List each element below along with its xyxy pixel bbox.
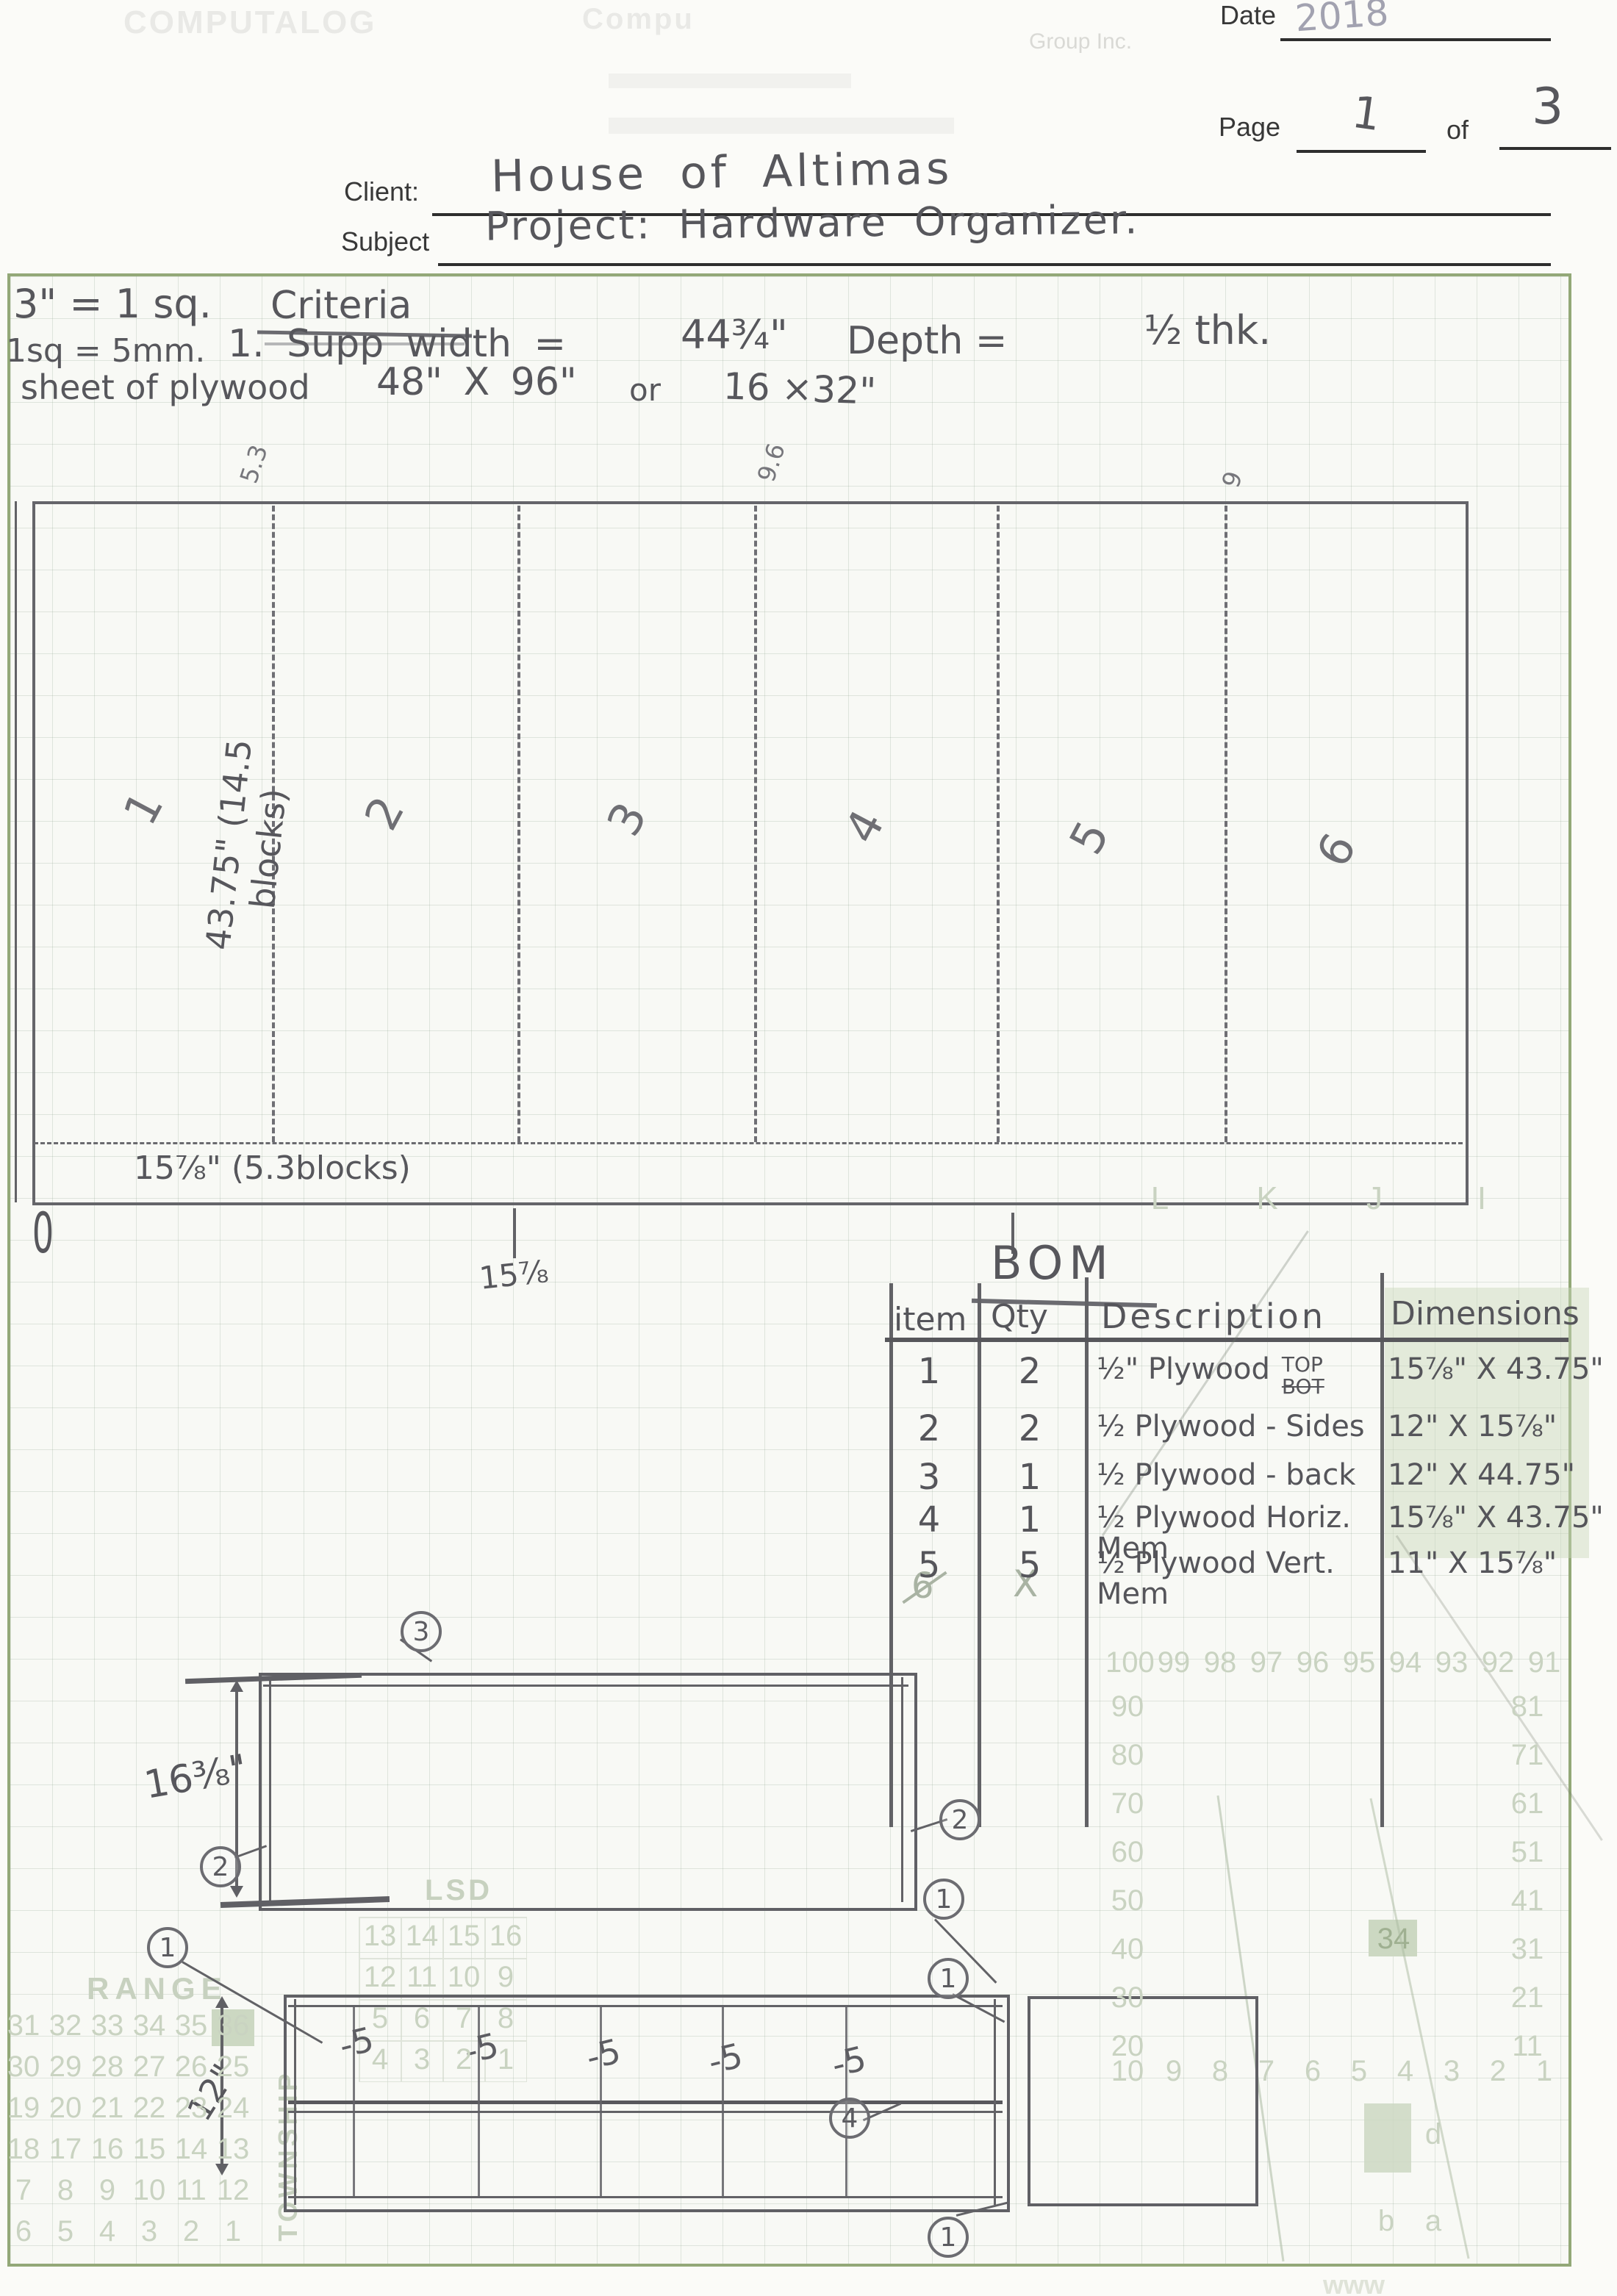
lsd-grid-number: 11 xyxy=(400,1961,444,1994)
range-grid-number: 16 xyxy=(85,2133,129,2166)
range-grid-number: 30 xyxy=(1,2051,46,2084)
lsd-grid-number: 10 xyxy=(442,1961,486,1994)
range-grid-number: 11 xyxy=(169,2174,213,2207)
section-grid-number: 60 xyxy=(1105,1836,1150,1869)
cut-layout-tick xyxy=(513,1208,516,1258)
front-view-shelf-inner xyxy=(288,2111,1003,2113)
bom-col-dimensions: Dimensions xyxy=(1391,1295,1580,1332)
section-grid-number: 5 xyxy=(1337,2055,1381,2088)
lsd-grid-number: 7 xyxy=(442,2002,486,2035)
section-grid-number: 4 xyxy=(1383,2055,1427,2088)
section-grid-number: 31 xyxy=(1505,1933,1549,1966)
section-grid-number: 3 xyxy=(1430,2055,1474,2088)
range-grid-number: 19 xyxy=(1,2092,46,2125)
cut-layout-divider-line xyxy=(754,506,757,1142)
cut-layout-strip-label: 15⅞" (5.3blocks) xyxy=(134,1149,411,1187)
criteria-title: Criteria xyxy=(270,284,412,328)
sheet-dims: 48" X 96" xyxy=(376,360,577,404)
column-letter: K xyxy=(1245,1180,1289,1217)
cut-layout-divider-line xyxy=(1225,506,1227,1142)
date-value: 2018 xyxy=(1294,0,1390,40)
section-grid-number: 1 xyxy=(1522,2055,1566,2088)
lsd-grid-number: 5 xyxy=(358,2002,402,2035)
column-letter: J xyxy=(1352,1180,1396,1217)
lsd-grid-number: 16 xyxy=(484,1920,528,1953)
front-view-right-inner xyxy=(994,1999,996,2205)
bom-cell-item: 2 xyxy=(898,1408,960,1449)
section-grid-number: 93 xyxy=(1430,1646,1474,1679)
range-grid-number: 18 xyxy=(1,2133,46,2166)
range-grid-number: 6 xyxy=(1,2215,46,2248)
page-label: Page xyxy=(1219,112,1280,143)
lsd-grid-number: 15 xyxy=(442,1920,486,1953)
scale-note-1: 3" = 1 sq. xyxy=(13,281,212,327)
section-grid-number: 97 xyxy=(1244,1646,1288,1679)
scale-note-2: 1sq = 5mm. xyxy=(6,332,205,370)
callout-circle-4: 4 xyxy=(829,2098,870,2139)
lsd-grid-number: 4 xyxy=(358,2043,402,2076)
range-grid-number: 24 xyxy=(211,2092,255,2125)
section-grid-number: 90 xyxy=(1105,1690,1150,1723)
bom-cell-dimensions: 15⅞" X 43.75" xyxy=(1388,1352,1608,1386)
bom-cell-qty: 1 xyxy=(997,1499,1063,1540)
side-view-rectangle xyxy=(1028,1996,1258,2206)
section-grid-number: 2 xyxy=(1476,2055,1520,2088)
section-grid-number: 100 xyxy=(1105,1646,1150,1679)
front-view-left-inner xyxy=(294,1999,296,2205)
bom-cell-dimensions: 15⅞" X 43.75" xyxy=(1388,1501,1608,1535)
section-grid-number: 96 xyxy=(1291,1646,1335,1679)
range-grid-number: 1 xyxy=(211,2215,255,2248)
range-grid-number: 14 xyxy=(169,2133,213,2166)
section-grid-number: 99 xyxy=(1152,1646,1196,1679)
section-grid-number: 81 xyxy=(1505,1690,1549,1723)
cut-layout-bottom-strip-line xyxy=(34,1142,1463,1144)
column-letter: I xyxy=(1460,1180,1504,1217)
total-pages: 3 xyxy=(1532,78,1563,136)
range-grid-number: 31 xyxy=(1,2009,46,2042)
lsd-grid-number: 14 xyxy=(400,1920,444,1953)
range-grid-number: 28 xyxy=(85,2051,129,2084)
bom-title: BOM xyxy=(991,1236,1114,1290)
front-view-divider xyxy=(722,2006,724,2196)
callout-circle-1: 1 xyxy=(928,2217,969,2258)
range-grid-number: 15 xyxy=(127,2133,171,2166)
range-grid-number: 33 xyxy=(85,2009,129,2042)
bom-cell-description: ½ Plywood Vert. Mem xyxy=(1097,1548,1376,1610)
cut-layout-tick-label: 15⅞ xyxy=(478,1253,551,1296)
top-view-rectangle xyxy=(259,1673,917,1911)
range-grid-number: 2 xyxy=(169,2215,213,2248)
lsd-grid-number: 12 xyxy=(358,1961,402,1994)
lsd-grid-number: 1 xyxy=(484,2043,528,2076)
lsd-grid-number: 6 xyxy=(400,2002,444,2035)
section-grid-number: 61 xyxy=(1505,1787,1549,1820)
range-grid-number: 10 xyxy=(127,2174,171,2207)
range-grid-number: 26 xyxy=(169,2051,213,2084)
range-grid-number: 13 xyxy=(211,2133,255,2166)
letterhead-smudge xyxy=(609,118,954,134)
client-label: Client: xyxy=(344,176,419,207)
cut-layout-divider-line xyxy=(997,506,1000,1142)
range-grid-number: 35 xyxy=(169,2009,213,2042)
bom-cell-item: 4 xyxy=(898,1499,960,1540)
letterhead-group: Group Inc. xyxy=(1029,29,1132,54)
date-label: Date xyxy=(1220,0,1276,31)
cut-layout-origin-label: 0 xyxy=(32,1201,54,1266)
letterhead-brand-fragment: Compu xyxy=(582,3,695,36)
sheet-label: sheet of plywood xyxy=(21,367,310,407)
lsd-grid-number: 9 xyxy=(484,1961,528,1994)
top-view-inner-line xyxy=(263,1685,908,1687)
highlight-34-value: 34 xyxy=(1372,1923,1416,1956)
range-grid-number: 12 xyxy=(211,2174,255,2207)
range-grid-number: 9 xyxy=(85,2174,129,2207)
section-grid-number: 91 xyxy=(1522,1646,1566,1679)
range-grid-number: 7 xyxy=(1,2174,46,2207)
callout-circle-1: 1 xyxy=(147,1927,188,1968)
range-grid-number: 17 xyxy=(43,2133,87,2166)
bom-cell-description: ½ Plywood - Sides xyxy=(1097,1411,1376,1442)
alt-dims: 16 ×32" xyxy=(723,365,877,412)
bom-cell-dimensions: 11" X 15⅞" xyxy=(1388,1546,1608,1580)
cut-layout-divider-line xyxy=(517,506,520,1142)
section-grid-number: 40 xyxy=(1105,1933,1150,1966)
range-grid-number: 32 xyxy=(43,2009,87,2042)
bom-cell-description: ½ Plywood - back xyxy=(1097,1460,1376,1490)
bom-col-item: item xyxy=(894,1301,967,1338)
section-grid-number: 80 xyxy=(1105,1739,1150,1772)
top-view-inner-line xyxy=(269,1677,271,1902)
of-label: of xyxy=(1446,115,1469,146)
corner-letter-d: d xyxy=(1411,2118,1455,2151)
bom-cell-dimensions: 12" X 44.75" xyxy=(1388,1458,1608,1492)
date-underline xyxy=(1280,38,1551,41)
section-grid-number: 21 xyxy=(1505,1981,1549,2015)
corner-shaded-cell xyxy=(1364,2103,1411,2173)
subject-value: Project: Hardware Organizer. xyxy=(485,196,1140,249)
section-grid-number: 10 xyxy=(1105,2055,1150,2088)
lsd-grid-number: 13 xyxy=(358,1920,402,1953)
section-grid-number: 70 xyxy=(1105,1787,1150,1820)
section-grid-number: 50 xyxy=(1105,1884,1150,1917)
bom-col-description: Description xyxy=(1101,1296,1326,1336)
range-grid-number: 27 xyxy=(127,2051,171,2084)
range-grid-number: 3 xyxy=(127,2215,171,2248)
range-grid-number: 34 xyxy=(127,2009,171,2042)
bom-cell-qty: 5 xyxy=(997,1545,1063,1586)
bom-cell-item: 5 xyxy=(898,1545,960,1586)
bom-cell-item: 1 xyxy=(898,1351,960,1392)
range-grid-number: 23 xyxy=(169,2092,213,2125)
dim-arrowhead xyxy=(230,1886,243,1898)
cut-layout-left-double-line xyxy=(15,501,17,1202)
range-grid-number: 20 xyxy=(43,2092,87,2125)
section-grid-number: 71 xyxy=(1505,1739,1549,1772)
supp-width-value: 44¾" xyxy=(681,312,788,358)
front-view-bottom-inner xyxy=(288,2196,1003,2198)
corner-letter-a: a xyxy=(1411,2205,1455,2238)
section-grid-number: 41 xyxy=(1505,1884,1549,1917)
section-grid-number: 95 xyxy=(1337,1646,1381,1679)
or-label: or xyxy=(629,372,661,408)
lsd-grid-number: 2 xyxy=(442,2043,486,2076)
scanned-worksheet-page: COMPUTALOG Compu Group Inc. Date 2018 Pa… xyxy=(0,0,1617,2296)
section-grid-number: 6 xyxy=(1291,2055,1335,2088)
corner-letter-b: b xyxy=(1364,2205,1408,2238)
bom-column-line xyxy=(1380,1273,1384,1827)
callout-circle-1: 1 xyxy=(923,1879,964,1920)
callout-circle-2: 2 xyxy=(200,1846,241,1887)
subject-label: Subject xyxy=(341,226,429,257)
section-grid-number: 9 xyxy=(1152,2055,1196,2088)
callout-circle-3: 3 xyxy=(401,1611,442,1652)
depth-label: Depth = xyxy=(847,319,1008,363)
callout-circle-2: 2 xyxy=(939,1799,980,1840)
letterhead-smudge xyxy=(609,73,851,88)
bom-header-separator xyxy=(885,1338,1568,1342)
section-grid-number: 98 xyxy=(1198,1646,1242,1679)
callout-circle-1: 1 xyxy=(928,1958,969,1999)
range-grid-number: 4 xyxy=(85,2215,129,2248)
range-grid-number: 36 xyxy=(211,2009,255,2042)
bom-cell-description: ½" PlywoodTOPBOT xyxy=(1097,1354,1376,1398)
www-watermark: www xyxy=(1323,2270,1385,2296)
column-letter: L xyxy=(1138,1180,1182,1217)
bom-cell-qty: 2 xyxy=(997,1351,1063,1392)
front-view-shelf xyxy=(288,2101,1003,2104)
supp-width-note: 1. Supp width = xyxy=(228,322,566,366)
client-value: House of Altimas xyxy=(490,143,953,203)
bom-cell-dimensions: 12" X 15⅞" xyxy=(1388,1410,1608,1443)
range-grid-number: 8 xyxy=(43,2174,87,2207)
section-grid-number: 51 xyxy=(1505,1836,1549,1869)
bom-column-line xyxy=(978,1283,981,1827)
range-grid-number: 21 xyxy=(85,2092,129,2125)
letterhead-logo: COMPUTALOG xyxy=(123,4,377,41)
range-grid-number: 5 xyxy=(43,2215,87,2248)
section-grid-number: 30 xyxy=(1105,1981,1150,2015)
bom-cell-qty: 1 xyxy=(997,1457,1063,1498)
bom-col-qty: Qty xyxy=(991,1298,1048,1335)
bom-column-line xyxy=(1085,1277,1089,1827)
section-grid-number: 94 xyxy=(1383,1646,1427,1679)
section-grid-number: 8 xyxy=(1198,2055,1242,2088)
range-grid-number: 29 xyxy=(43,2051,87,2084)
depth-value: ½ thk. xyxy=(1144,307,1271,354)
top-view-inner-line xyxy=(901,1677,903,1902)
lsd-grid-number: 3 xyxy=(400,2043,444,2076)
section-grid-number: 92 xyxy=(1476,1646,1520,1679)
lsd-grid-number: 8 xyxy=(484,2002,528,2035)
dim-arrowhead xyxy=(215,1996,229,2008)
page-number: 1 xyxy=(1349,87,1384,142)
range-grid-number: 25 xyxy=(211,2051,255,2084)
subject-underline xyxy=(438,263,1551,266)
range-grid-number: 22 xyxy=(127,2092,171,2125)
bom-cell-qty: 2 xyxy=(997,1408,1063,1449)
bom-cell-item: 3 xyxy=(898,1457,960,1498)
section-grid-number: 7 xyxy=(1244,2055,1288,2088)
pages-underline xyxy=(1499,147,1611,150)
page-underline xyxy=(1297,150,1426,153)
